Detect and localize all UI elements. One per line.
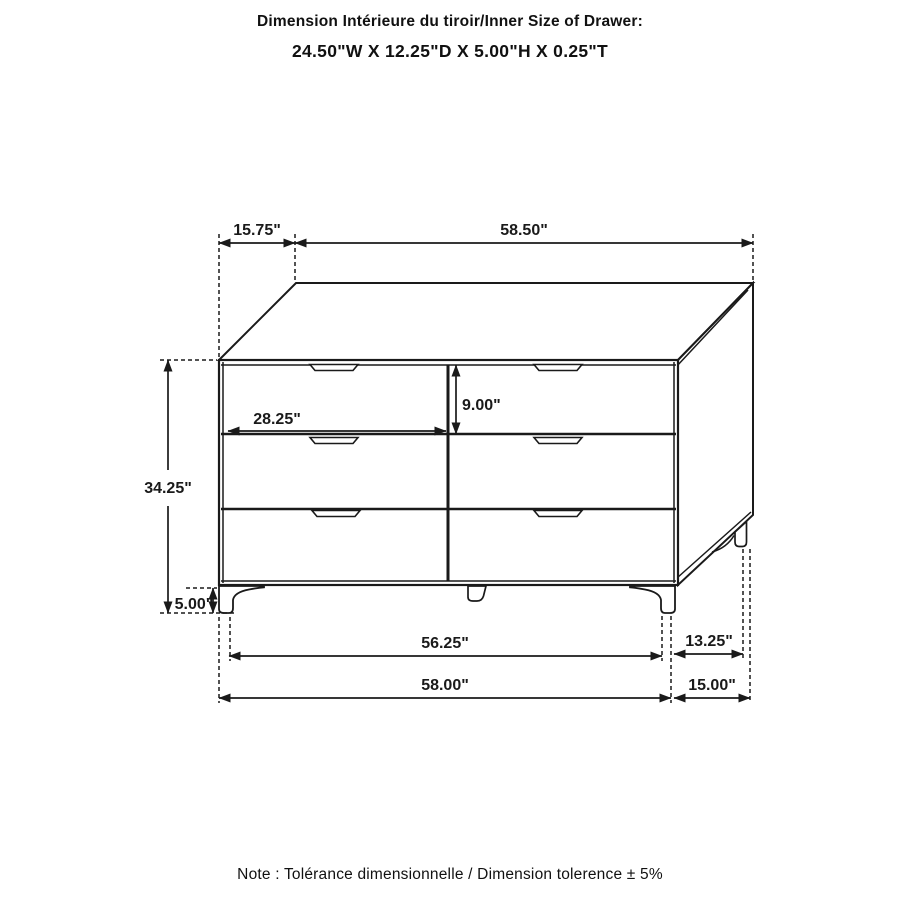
drawer-handle — [310, 365, 358, 371]
dimension-front-leg-span: 56.25" — [229, 635, 662, 656]
dimension-side-leg-span: 13.25" — [674, 633, 743, 654]
dimension-top-depth: 15.75" — [219, 222, 295, 243]
drawer-handle — [534, 438, 582, 444]
dim-label-drawer-width: 28.25" — [253, 411, 301, 428]
dimension-overall-width: 58.00" — [219, 677, 671, 698]
dim-label-top-depth: 15.75" — [233, 222, 281, 239]
drawer-handle — [310, 438, 358, 444]
dresser-dimension-diagram: 15.75" 58.50" 34.25" 5.00" 28.25" 9.00" … — [0, 0, 900, 900]
dim-label-overall-height: 34.25" — [144, 480, 192, 497]
center-support-glide — [468, 586, 486, 601]
drawer-handle — [534, 511, 582, 517]
dim-label-side-leg-span: 13.25" — [685, 633, 733, 650]
dimension-leg-height: 5.00" — [175, 588, 214, 613]
dim-label-front-leg-span: 56.25" — [421, 635, 469, 652]
dim-label-overall-depth: 15.00" — [688, 677, 736, 694]
dim-label-leg-height: 5.00" — [175, 596, 214, 613]
cabinet-front-face — [219, 360, 678, 585]
dimension-overall-depth: 15.00" — [674, 677, 750, 698]
drawer-handle — [312, 511, 360, 517]
dimension-sheet: { "title": { "line1": "Dimension Intérie… — [0, 0, 900, 900]
tolerance-note: Note : Tolérance dimensionnelle / Dimens… — [0, 866, 900, 884]
cabinet-top-face — [219, 283, 753, 360]
drawer-handle — [534, 365, 582, 371]
dim-label-drawer-height: 9.00" — [462, 397, 501, 414]
front-right-leg — [630, 586, 675, 613]
dim-label-top-width: 58.50" — [500, 222, 548, 239]
dim-label-overall-width: 58.00" — [421, 677, 469, 694]
cabinet-legs — [219, 586, 675, 613]
front-left-leg — [219, 586, 264, 613]
dimension-overall-height: 34.25" — [144, 360, 192, 613]
dimension-top-width: 58.50" — [295, 222, 753, 243]
